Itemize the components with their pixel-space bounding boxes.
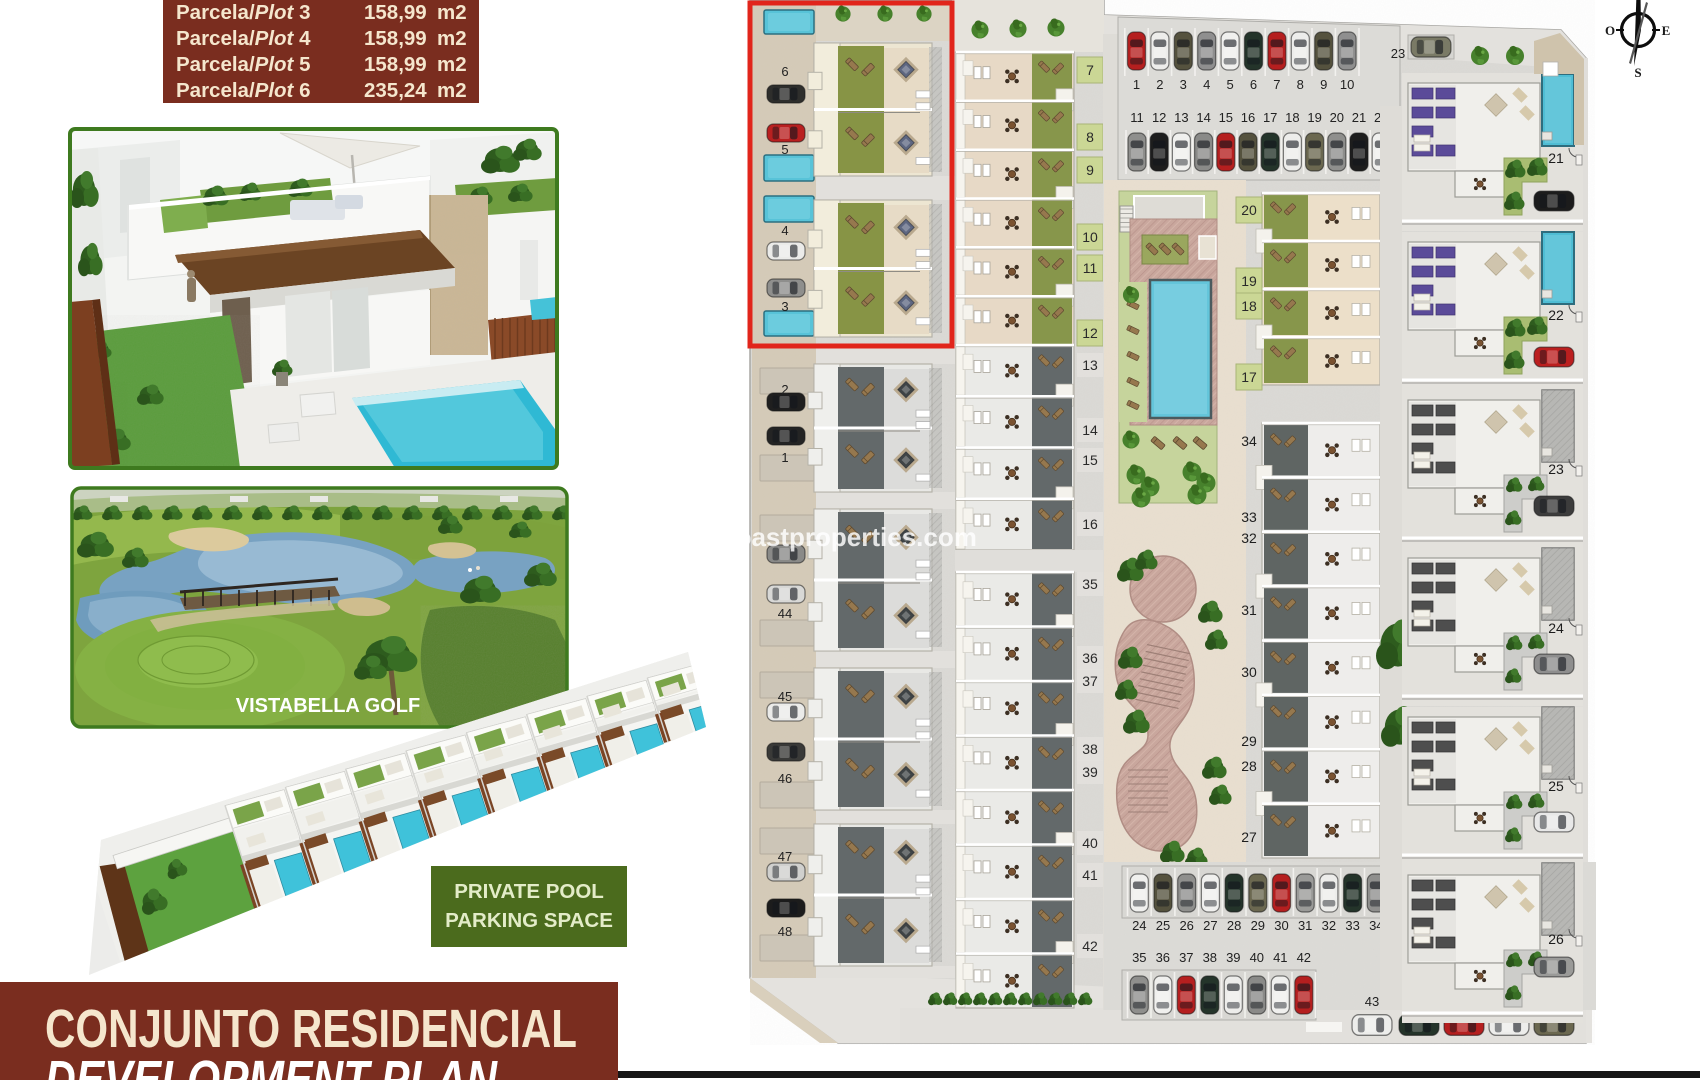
svg-text:43: 43 [1365, 994, 1379, 1009]
svg-text:30: 30 [1274, 918, 1288, 933]
svg-text:PRIVATE POOL: PRIVATE POOL [454, 880, 604, 903]
svg-text:36: 36 [1156, 950, 1170, 965]
svg-text:1: 1 [781, 450, 788, 465]
svg-text:45: 45 [778, 689, 792, 704]
svg-text:33: 33 [1345, 918, 1359, 933]
svg-text:m2: m2 [437, 53, 467, 76]
svg-text:27: 27 [1203, 918, 1217, 933]
svg-text:41: 41 [1082, 867, 1098, 883]
svg-text:32: 32 [1322, 918, 1336, 933]
svg-text:m2: m2 [437, 79, 467, 102]
svg-text:4: 4 [1203, 77, 1210, 92]
svg-text:VISTABELLA GOLF: VISTABELLA GOLF [236, 695, 420, 717]
svg-text:36: 36 [1082, 650, 1098, 666]
svg-text:Parcela/Plot 3: Parcela/Plot 3 [176, 1, 310, 24]
svg-text:6: 6 [781, 64, 788, 79]
svg-text:25: 25 [1548, 778, 1564, 794]
svg-text:20: 20 [1330, 110, 1344, 125]
svg-text:25: 25 [1156, 918, 1170, 933]
svg-text:6: 6 [1250, 77, 1257, 92]
svg-text:23: 23 [1391, 46, 1405, 61]
svg-text:12: 12 [1082, 325, 1098, 341]
svg-text:15: 15 [1219, 110, 1233, 125]
svg-text:38: 38 [1082, 741, 1098, 757]
svg-text:8: 8 [1297, 77, 1304, 92]
svg-text:11: 11 [1083, 260, 1098, 276]
svg-text:20: 20 [1241, 202, 1257, 218]
svg-text:O: O [1605, 23, 1615, 38]
svg-text:39: 39 [1226, 950, 1240, 965]
svg-text:29: 29 [1251, 918, 1265, 933]
svg-text:158,99: 158,99 [364, 27, 427, 50]
svg-text:44: 44 [778, 606, 792, 621]
svg-text:46: 46 [778, 771, 792, 786]
svg-text:S: S [1634, 65, 1641, 80]
svg-text:21: 21 [1548, 150, 1564, 166]
svg-text:2: 2 [1156, 77, 1163, 92]
svg-text:39: 39 [1082, 764, 1098, 780]
svg-text:4: 4 [781, 223, 788, 238]
svg-text:27: 27 [1241, 829, 1257, 845]
svg-text:2: 2 [781, 382, 788, 397]
svg-text:m2: m2 [437, 27, 467, 50]
svg-text:7: 7 [1086, 62, 1094, 78]
svg-text:15: 15 [1082, 452, 1098, 468]
svg-text:10: 10 [1340, 77, 1354, 92]
svg-text:24: 24 [1548, 620, 1564, 636]
svg-text:5: 5 [781, 142, 788, 157]
svg-text:24: 24 [1132, 918, 1146, 933]
svg-text:7: 7 [1273, 77, 1280, 92]
svg-text:29: 29 [1241, 733, 1257, 749]
svg-text:9: 9 [1320, 77, 1327, 92]
svg-text:235,24: 235,24 [364, 79, 427, 102]
svg-text:35: 35 [1082, 576, 1098, 592]
svg-text:40: 40 [1082, 835, 1098, 851]
svg-text:14: 14 [1082, 422, 1098, 438]
svg-text:26: 26 [1179, 918, 1193, 933]
svg-text:30: 30 [1241, 664, 1257, 680]
svg-text:31: 31 [1241, 602, 1257, 618]
svg-text:11: 11 [1130, 110, 1144, 125]
svg-text:37: 37 [1179, 950, 1193, 965]
svg-text:PARKING SPACE: PARKING SPACE [445, 909, 613, 932]
svg-text:16: 16 [1082, 516, 1098, 532]
svg-text:tecoastproperties.com: tecoastproperties.com [698, 522, 977, 552]
svg-text:158,99: 158,99 [364, 1, 427, 24]
svg-text:28: 28 [1227, 918, 1241, 933]
svg-text:DEVELOPMENT PLAN: DEVELOPMENT PLAN [45, 1050, 498, 1080]
svg-text:E: E [1662, 23, 1671, 38]
svg-text:33: 33 [1241, 509, 1257, 525]
svg-text:158,99: 158,99 [364, 53, 427, 76]
svg-text:32: 32 [1241, 530, 1257, 546]
svg-text:42: 42 [1082, 938, 1098, 954]
svg-text:10: 10 [1082, 229, 1098, 245]
svg-text:m2: m2 [437, 1, 467, 24]
svg-text:Parcela/Plot 5: Parcela/Plot 5 [176, 53, 310, 76]
svg-text:14: 14 [1196, 110, 1210, 125]
svg-text:21: 21 [1352, 110, 1366, 125]
svg-text:16: 16 [1241, 110, 1255, 125]
svg-text:26: 26 [1548, 931, 1564, 947]
svg-text:12: 12 [1152, 110, 1166, 125]
svg-text:19: 19 [1307, 110, 1321, 125]
svg-text:8: 8 [1086, 129, 1094, 145]
svg-text:40: 40 [1250, 950, 1264, 965]
svg-text:3: 3 [1180, 77, 1187, 92]
svg-text:47: 47 [778, 849, 792, 864]
svg-text:34: 34 [1241, 433, 1257, 449]
svg-text:18: 18 [1285, 110, 1299, 125]
svg-text:31: 31 [1298, 918, 1312, 933]
svg-text:42: 42 [1297, 950, 1311, 965]
svg-text:13: 13 [1174, 110, 1188, 125]
svg-text:18: 18 [1241, 298, 1257, 314]
svg-text:48: 48 [778, 924, 792, 939]
svg-text:22: 22 [1548, 307, 1564, 323]
svg-text:38: 38 [1203, 950, 1217, 965]
svg-text:41: 41 [1273, 950, 1287, 965]
svg-text:5: 5 [1226, 77, 1233, 92]
svg-text:35: 35 [1132, 950, 1146, 965]
svg-text:19: 19 [1241, 273, 1257, 289]
svg-text:1: 1 [1133, 77, 1140, 92]
svg-text:3: 3 [781, 299, 788, 314]
svg-text:17: 17 [1263, 110, 1277, 125]
svg-text:37: 37 [1082, 673, 1098, 689]
svg-text:9: 9 [1086, 162, 1094, 178]
svg-text:13: 13 [1082, 357, 1098, 373]
svg-text:17: 17 [1241, 369, 1257, 385]
svg-text:23: 23 [1548, 461, 1564, 477]
svg-text:Parcela/Plot 6: Parcela/Plot 6 [176, 79, 310, 102]
svg-text:Parcela/Plot 4: Parcela/Plot 4 [176, 27, 311, 50]
svg-text:28: 28 [1241, 758, 1257, 774]
